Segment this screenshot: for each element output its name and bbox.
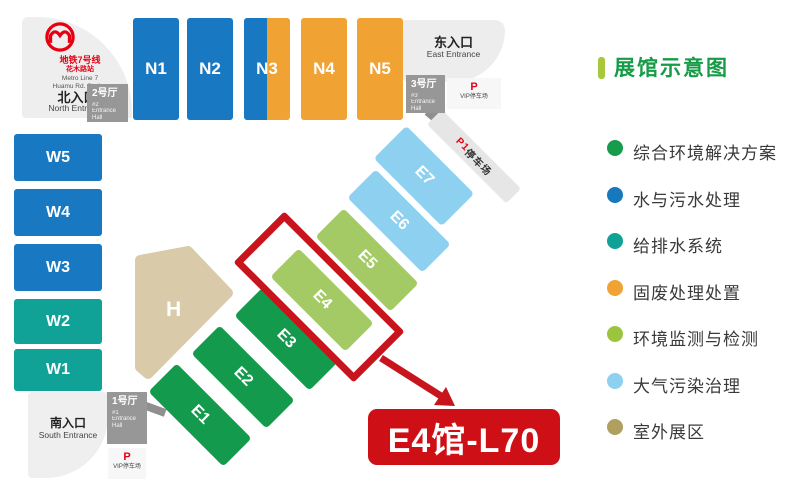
hall-e3-label: E3 <box>273 326 300 353</box>
legend-title-bar <box>598 57 605 79</box>
south-entrance-area: 南入口 South Entrance <box>28 392 108 478</box>
hall-e5-label: E5 <box>354 247 381 274</box>
legend-label-solid-waste: 固废处理处置 <box>633 279 741 304</box>
hall3-label: 3号厅 <box>411 79 445 91</box>
hall-n4: N4 <box>301 18 347 120</box>
hall-n1-label: N1 <box>145 59 167 79</box>
entrance-hall-1: 1号厅 #1 Entrance Hall <box>107 392 147 444</box>
legend-label-outdoor: 室外展区 <box>633 418 705 443</box>
hall-n3: N3 <box>244 18 290 120</box>
hall-n1: N1 <box>133 18 179 120</box>
hall1-number: #1 <box>112 410 147 417</box>
highlight-label: E4馆-L70 <box>368 409 560 465</box>
hall2-label: 2号厅 <box>92 88 128 100</box>
hall-w1-label: W1 <box>46 361 70 379</box>
hall-e6-label: E6 <box>386 208 413 235</box>
hall-n3-label: N3 <box>256 59 278 79</box>
hall-e7-label: E7 <box>411 163 438 190</box>
hall-n5: N5 <box>357 18 403 120</box>
hall1-label: 1号厅 <box>112 396 147 408</box>
hall-w5: W5 <box>14 134 102 181</box>
vip-parking-bottom: P VIP停车场 <box>108 448 146 479</box>
hall-w4-label: W4 <box>46 204 70 222</box>
south-entrance-label-en: South Entrance <box>28 430 108 440</box>
legend-label-comprehensive: 综合环境解决方案 <box>633 139 777 164</box>
entrance-hall-3: 3号厅 #3 Entrance Hall <box>406 75 445 113</box>
metro-station-label: 花木路站 <box>48 66 112 74</box>
hall-w3: W3 <box>14 244 102 291</box>
hall-h-label: H <box>166 298 181 321</box>
hall-e1-label: E1 <box>187 402 214 429</box>
legend-dot-solid-waste <box>607 280 623 296</box>
legend-label-drainage: 给排水系统 <box>633 232 723 257</box>
east-entrance-label-en: East Entrance <box>402 49 505 59</box>
vip-parking-bottom-label: VIP停车场 <box>108 464 146 471</box>
hall-n2-label: N2 <box>199 59 221 79</box>
hall-n2: N2 <box>187 18 233 120</box>
entrance-hall-2: 2号厅 #2 Entrance Hall <box>87 84 128 122</box>
hall-n5-label: N5 <box>369 59 391 79</box>
legend-dot-monitoring <box>607 326 623 342</box>
vip-parking-top-label: VIP停车场 <box>447 94 501 101</box>
hall3-label-en: Entrance Hall <box>411 99 445 113</box>
south-entrance-label: 南入口 <box>28 414 108 431</box>
hall-n4-label: N4 <box>313 59 335 79</box>
legend-dot-comprehensive <box>607 140 623 156</box>
hall2-number: #2 <box>92 102 128 109</box>
p1-parking-label: 停车场 <box>462 145 496 179</box>
expo-floor-map: 地铁7号线 花木路站 Metro Line 7 Huamu Rd. Statio… <box>0 0 800 494</box>
legend-dot-drainage <box>607 233 623 249</box>
legend-label-air: 大气污染治理 <box>633 372 741 397</box>
legend-dot-outdoor <box>607 419 623 435</box>
legend-label-water: 水与污水处理 <box>633 186 741 211</box>
hall-w2: W2 <box>14 299 102 344</box>
hall-w4: W4 <box>14 189 102 236</box>
hall-w1: W1 <box>14 349 102 391</box>
hall3-number: #3 <box>411 93 445 100</box>
east-entrance-area: 东入口 East Entrance <box>402 20 505 82</box>
hall-w2-label: W2 <box>46 313 70 331</box>
metro-line-label: 地铁7号线 <box>48 55 112 65</box>
hall2-label-en: Entrance Hall <box>92 108 128 122</box>
hall-w3-label: W3 <box>46 259 70 277</box>
parking-p-icon: P <box>447 81 501 94</box>
legend-label-monitoring: 环境监测与检测 <box>633 325 759 350</box>
hall-w5-label: W5 <box>46 149 70 167</box>
hall1-label-en: Entrance Hall <box>112 416 147 430</box>
legend-title: 展馆示意图 <box>614 52 729 82</box>
hall-e2-label: E2 <box>230 364 257 391</box>
shanghai-metro-logo-icon <box>44 21 76 53</box>
legend-dot-air <box>607 373 623 389</box>
metro-line-label-en: Metro Line 7 <box>48 75 112 82</box>
parking-p-icon-bottom: P <box>108 451 146 464</box>
vip-parking-top: P VIP停车场 <box>447 78 501 109</box>
legend-dot-water <box>607 187 623 203</box>
